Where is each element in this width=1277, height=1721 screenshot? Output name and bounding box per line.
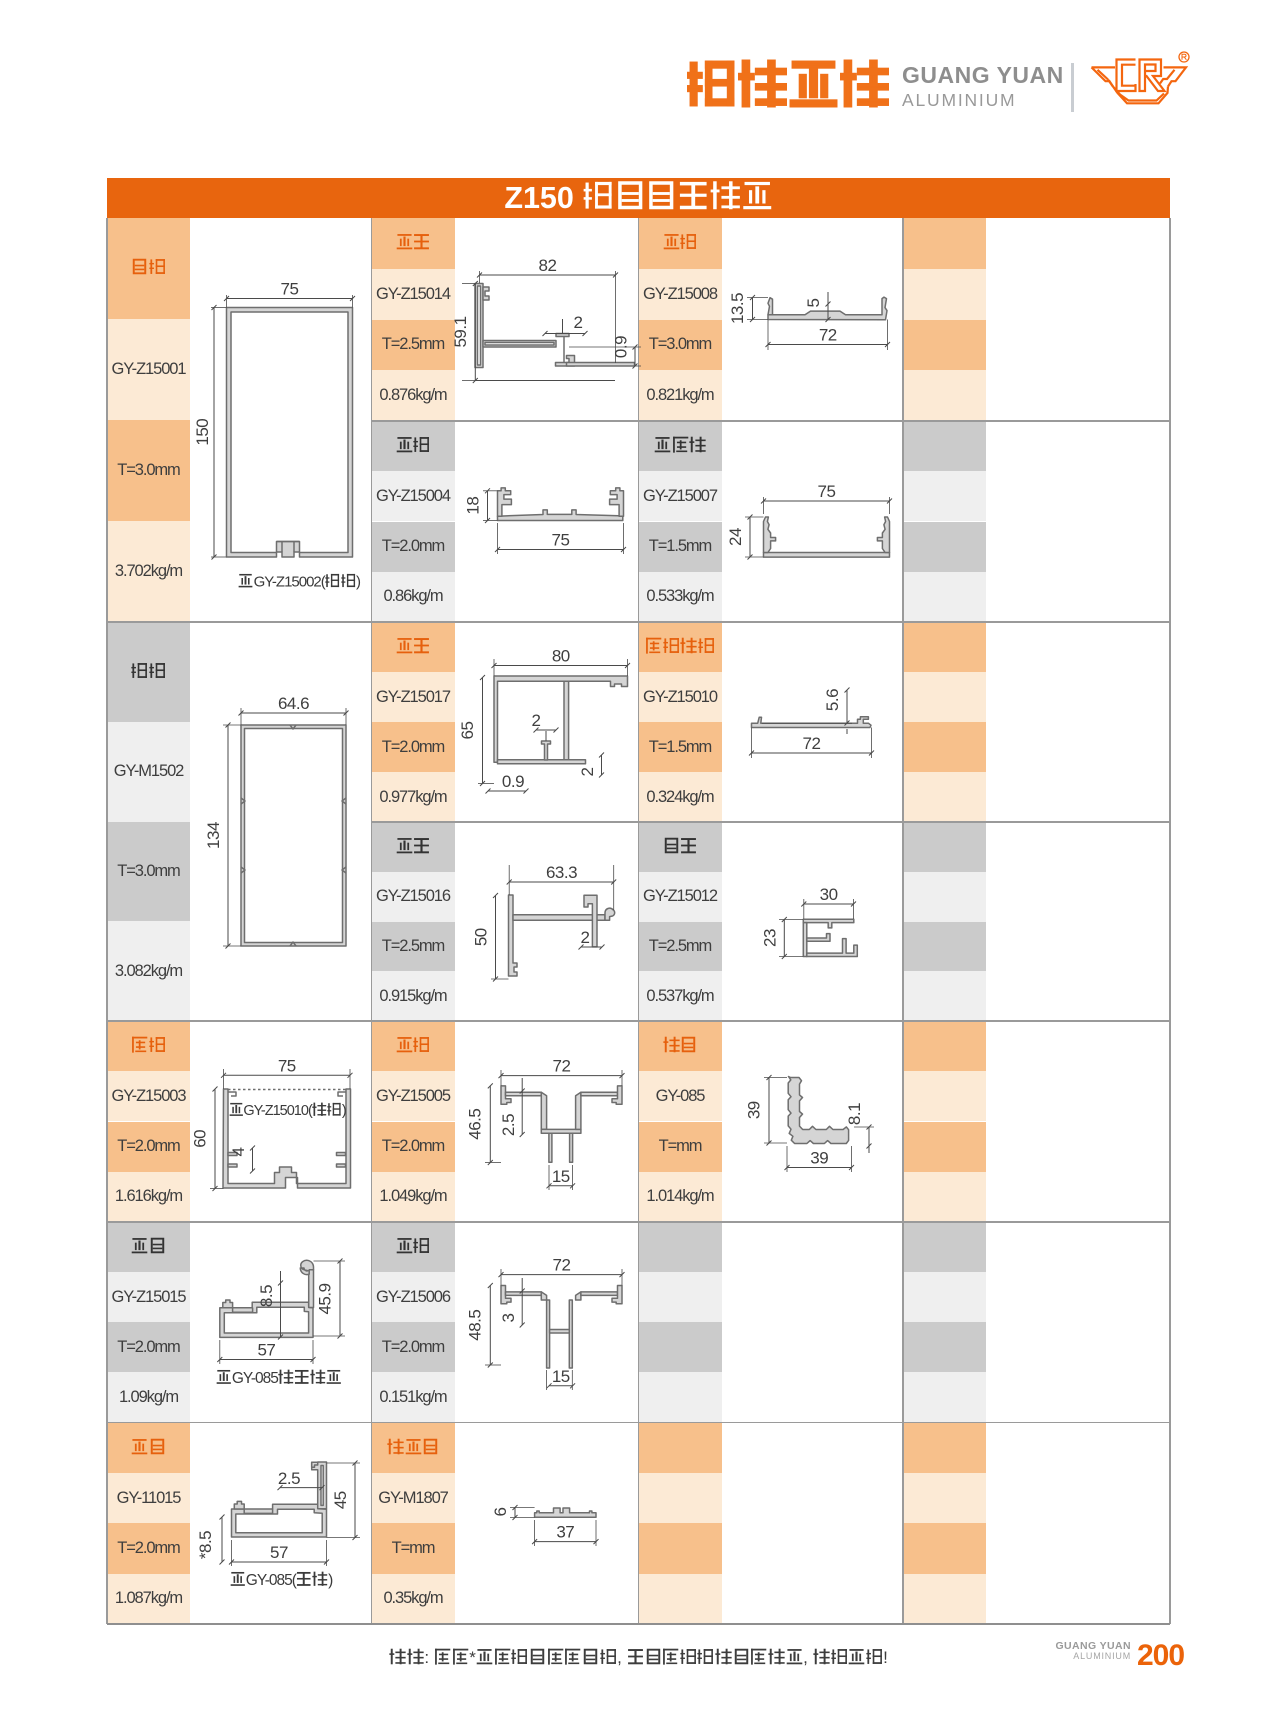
svg-text:57: 57: [257, 1341, 275, 1360]
svg-text:6: 6: [491, 1507, 510, 1516]
svg-text:45: 45: [331, 1491, 350, 1509]
svg-text:24: 24: [726, 528, 745, 546]
svg-text:82: 82: [539, 256, 557, 275]
svg-text:2: 2: [578, 767, 597, 776]
svg-text:46.5: 46.5: [465, 1109, 484, 1140]
svg-text:72: 72: [819, 326, 837, 345]
svg-text:75: 75: [278, 1056, 296, 1075]
svg-text:65: 65: [458, 722, 477, 740]
svg-text:57: 57: [270, 1543, 288, 1562]
svg-text:8.5: 8.5: [257, 1285, 276, 1307]
svg-text:30: 30: [820, 885, 838, 904]
svg-text:18: 18: [464, 497, 483, 515]
svg-text:72: 72: [803, 734, 821, 753]
svg-text:23: 23: [760, 929, 779, 947]
svg-text:8.1: 8.1: [845, 1103, 864, 1125]
svg-text:15: 15: [552, 1167, 570, 1186]
svg-text:64.6: 64.6: [278, 694, 309, 713]
svg-text:15: 15: [552, 1367, 570, 1386]
svg-text:134: 134: [204, 822, 223, 849]
svg-text:72: 72: [553, 1256, 571, 1275]
svg-text:2.5: 2.5: [278, 1469, 300, 1488]
svg-text:39: 39: [810, 1149, 828, 1168]
svg-text:63.3: 63.3: [546, 863, 577, 882]
svg-text:37: 37: [556, 1523, 574, 1542]
svg-text:60: 60: [191, 1130, 210, 1148]
svg-text:80: 80: [552, 647, 570, 666]
svg-text:3: 3: [499, 1313, 518, 1322]
svg-text:5.6: 5.6: [823, 689, 842, 711]
svg-text:2.5: 2.5: [499, 1114, 518, 1136]
svg-text:2: 2: [532, 711, 541, 730]
svg-text:*8.5: *8.5: [196, 1531, 215, 1559]
svg-text:150: 150: [193, 419, 212, 446]
svg-text:5: 5: [804, 298, 823, 307]
svg-text:48.5: 48.5: [465, 1310, 484, 1341]
svg-text:2: 2: [574, 313, 583, 332]
svg-text:50: 50: [472, 928, 491, 946]
svg-text:39: 39: [745, 1101, 764, 1119]
svg-text:75: 75: [281, 280, 299, 299]
svg-text:59.1: 59.1: [451, 316, 470, 347]
svg-text:13.5: 13.5: [728, 293, 747, 324]
svg-text:75: 75: [818, 482, 836, 501]
svg-text:0.9: 0.9: [502, 772, 524, 791]
svg-text:75: 75: [552, 531, 570, 550]
svg-text:72: 72: [553, 1057, 571, 1076]
svg-text:4: 4: [229, 1147, 248, 1156]
svg-text:45.9: 45.9: [316, 1283, 335, 1314]
svg-text:2: 2: [581, 928, 590, 947]
